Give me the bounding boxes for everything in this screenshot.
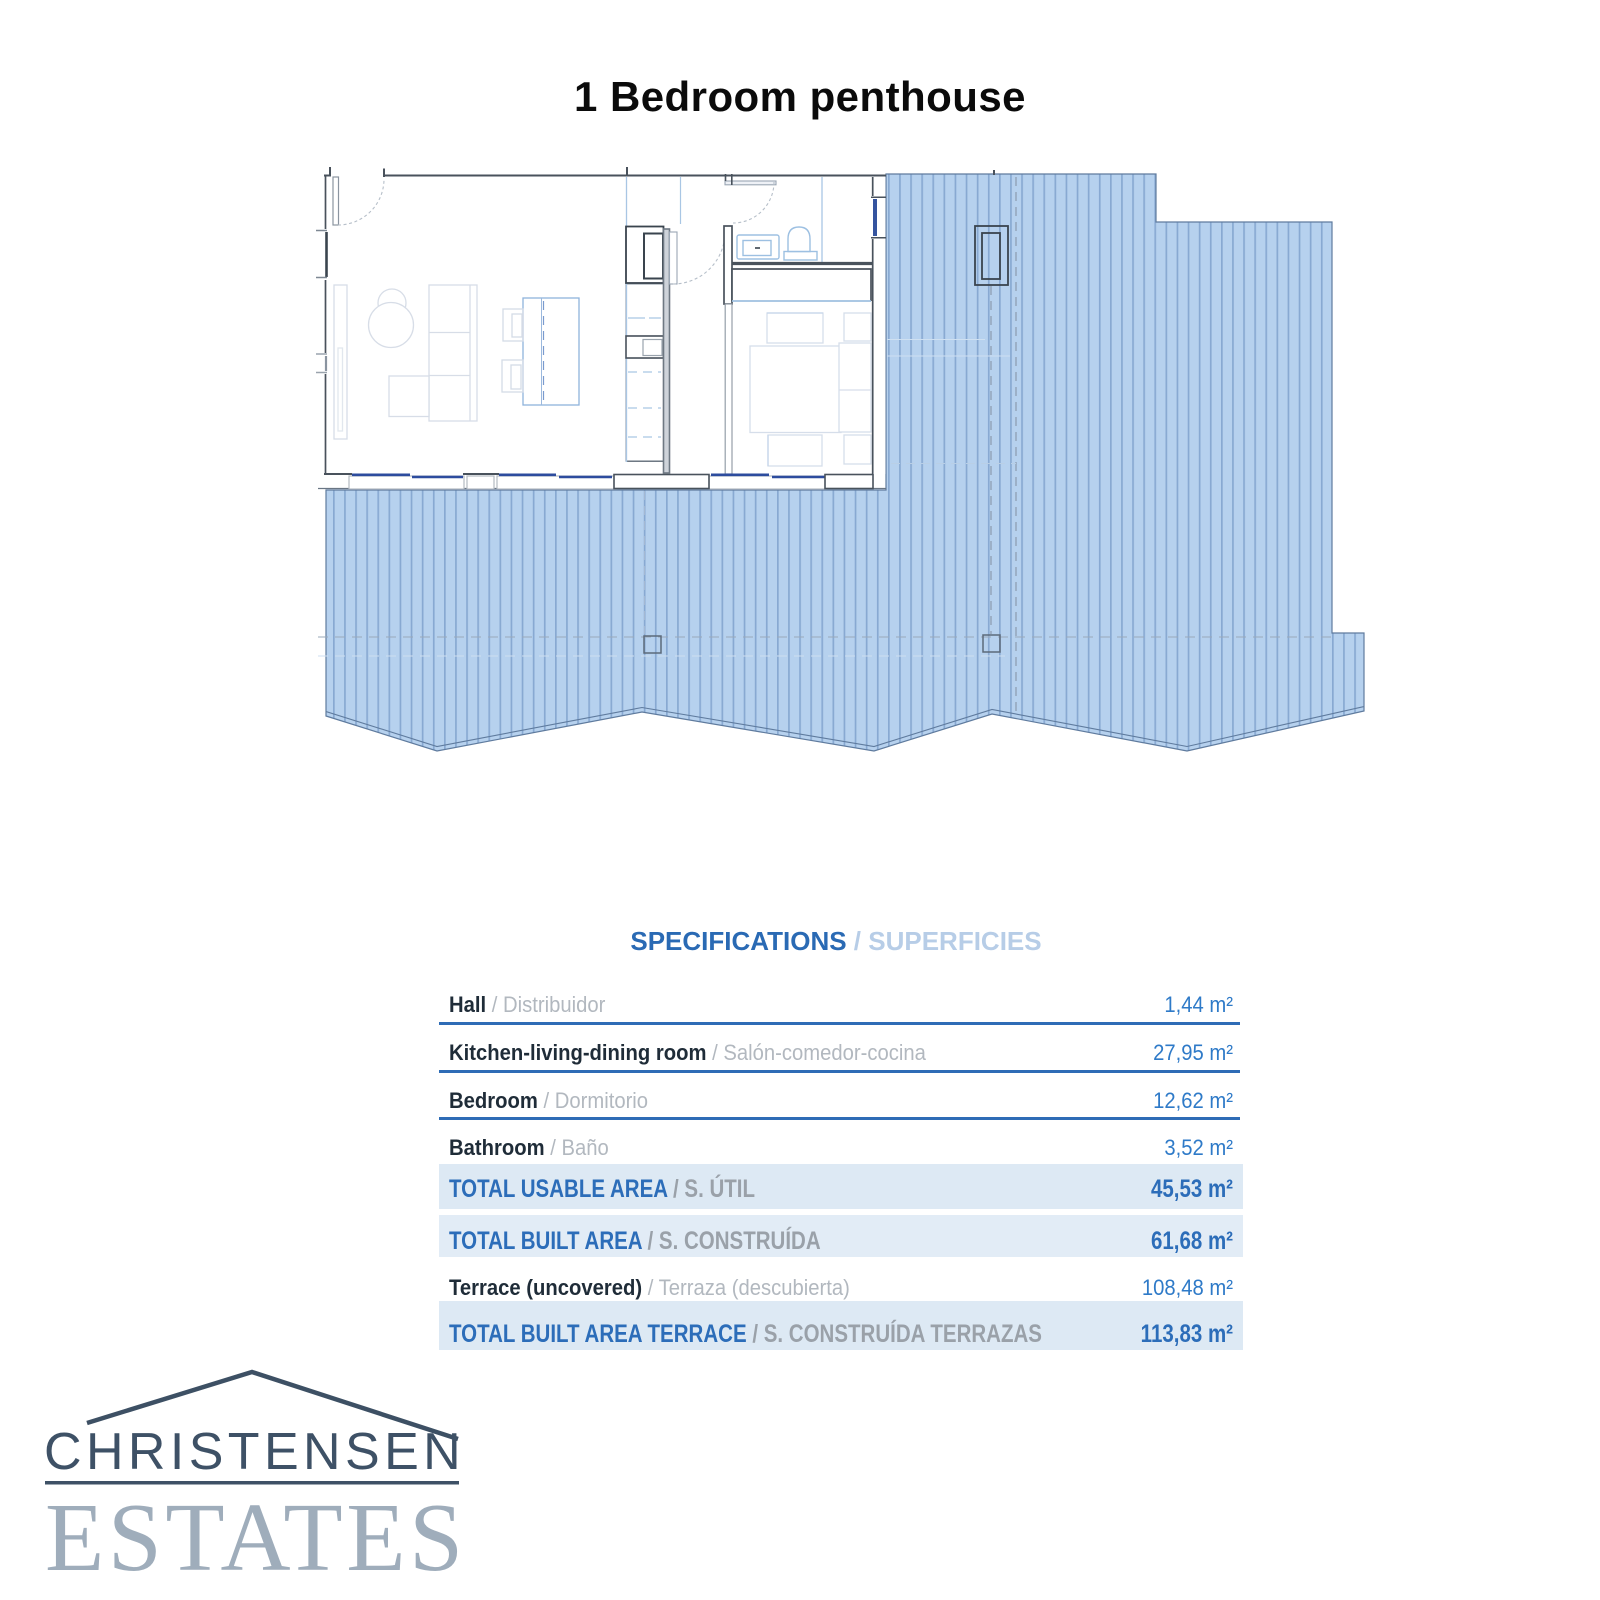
svg-text:CHRISTENSEN: CHRISTENSEN [44,1423,465,1481]
svg-text:ESTATES: ESTATES [45,1484,467,1591]
